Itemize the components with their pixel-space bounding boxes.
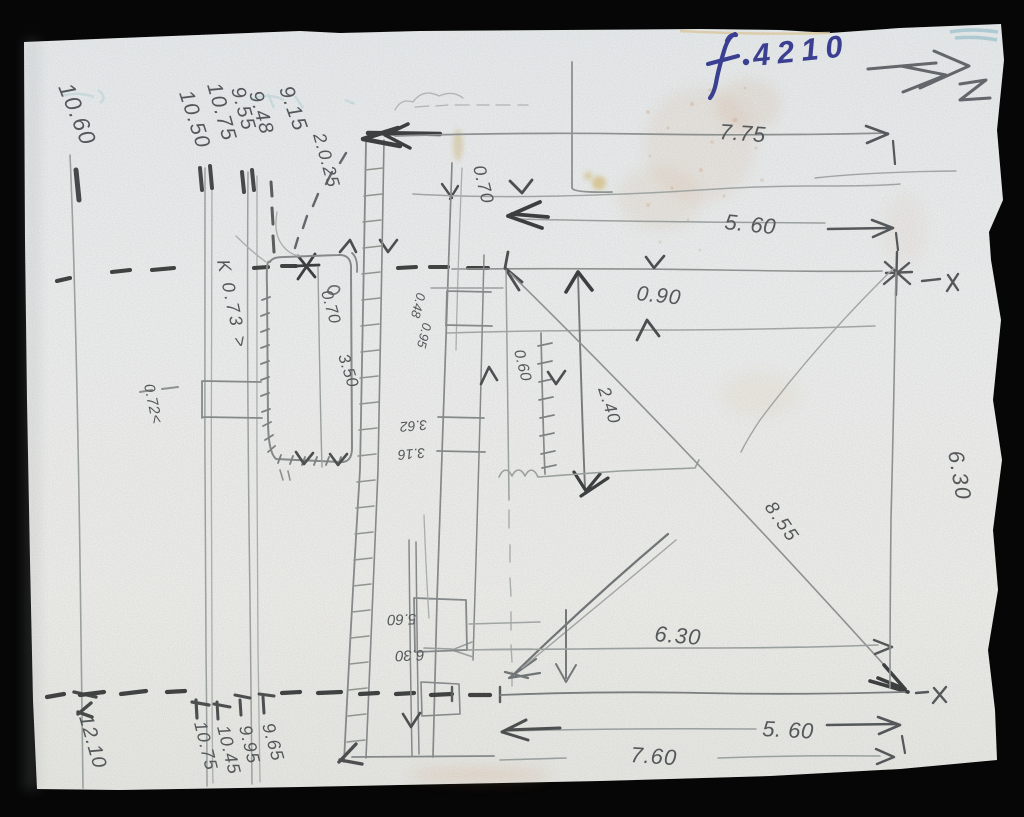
svg-text:5. 60: 5. 60 bbox=[762, 716, 815, 744]
svg-text:6.30: 6.30 bbox=[394, 646, 424, 664]
svg-text:7.75: 7.75 bbox=[719, 119, 767, 147]
svg-text:5.60: 5.60 bbox=[386, 610, 416, 628]
svg-text:0.90: 0.90 bbox=[635, 282, 682, 310]
svg-text:6.30: 6.30 bbox=[654, 621, 703, 650]
svg-text:3.16: 3.16 bbox=[397, 445, 426, 463]
svg-text:3.62: 3.62 bbox=[399, 417, 428, 435]
svg-text:7.60: 7.60 bbox=[630, 742, 678, 770]
